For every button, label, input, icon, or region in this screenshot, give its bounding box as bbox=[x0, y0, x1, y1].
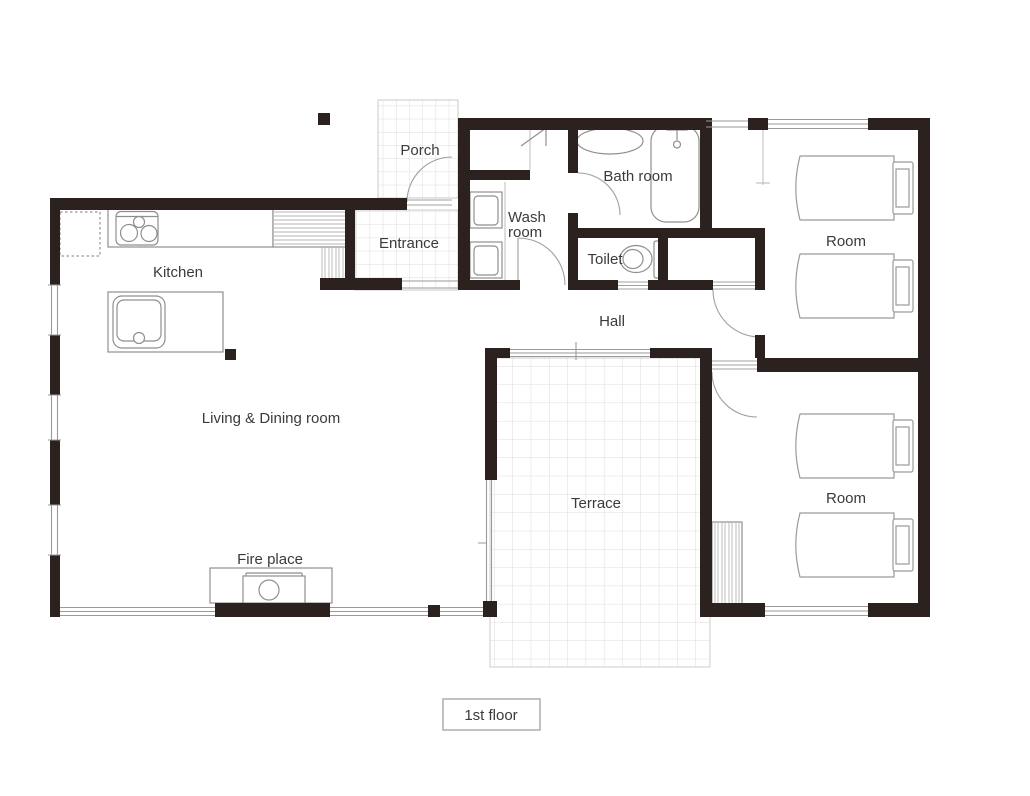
terrace-sliding-door bbox=[478, 480, 492, 601]
label-entrance: Entrance bbox=[379, 235, 439, 252]
label-room-lower: Room bbox=[826, 490, 866, 507]
vanity-oval bbox=[577, 128, 643, 154]
room-upper-door bbox=[713, 282, 760, 337]
washbasin-upper bbox=[470, 192, 502, 228]
toilet-door bbox=[618, 282, 648, 289]
label-room-upper: Room bbox=[826, 233, 866, 250]
shoe-cabinet bbox=[273, 208, 347, 247]
floor-tag: 1st floor bbox=[443, 699, 540, 730]
terrace-tiles bbox=[490, 358, 710, 667]
label-wash-room-2: room bbox=[508, 224, 542, 241]
island-sink bbox=[108, 292, 223, 352]
room-upper-window bbox=[768, 120, 868, 129]
bed-lower-room-1 bbox=[796, 414, 913, 478]
room-lower-window bbox=[765, 607, 868, 616]
porch-post bbox=[318, 113, 330, 125]
washbasin-lower bbox=[470, 242, 502, 278]
gas-stove bbox=[116, 212, 158, 246]
terrace-top-window bbox=[510, 342, 650, 360]
label-bath-room: Bath room bbox=[603, 168, 672, 185]
kitchen-pillar bbox=[225, 349, 236, 360]
left-wall-windows bbox=[48, 285, 61, 555]
bed-lower-room-2 bbox=[796, 513, 913, 577]
label-fire-place: Fire place bbox=[237, 551, 303, 568]
bath-window bbox=[706, 121, 748, 127]
floor-plan-page: Porch Entrance Kitchen Wash room Bath ro… bbox=[0, 0, 1030, 796]
label-hall: Hall bbox=[599, 313, 625, 330]
label-toilet: Toilet bbox=[587, 251, 623, 268]
refrigerator-space bbox=[60, 212, 100, 256]
entrance-step bbox=[322, 247, 346, 278]
label-kitchen: Kitchen bbox=[153, 264, 203, 281]
room-upper-curtain-line bbox=[756, 130, 770, 185]
living-pillar-1 bbox=[428, 605, 440, 617]
closet-shelves bbox=[712, 522, 742, 605]
bed-upper-room-2 bbox=[796, 254, 913, 318]
washroom-door bbox=[518, 238, 565, 285]
floor-plan: Porch Entrance Kitchen Wash room Bath ro… bbox=[0, 0, 1030, 796]
label-terrace: Terrace bbox=[571, 495, 621, 512]
living-pillar-2 bbox=[483, 601, 497, 617]
label-living-dining: Living & Dining room bbox=[202, 410, 340, 427]
floor-tag-label: 1st floor bbox=[464, 707, 517, 724]
closet-folding-door-icon bbox=[521, 128, 546, 146]
room-lower-door bbox=[712, 361, 757, 417]
bed-upper-room-1 bbox=[796, 156, 913, 220]
label-porch: Porch bbox=[400, 142, 439, 159]
fireplace bbox=[210, 568, 332, 603]
